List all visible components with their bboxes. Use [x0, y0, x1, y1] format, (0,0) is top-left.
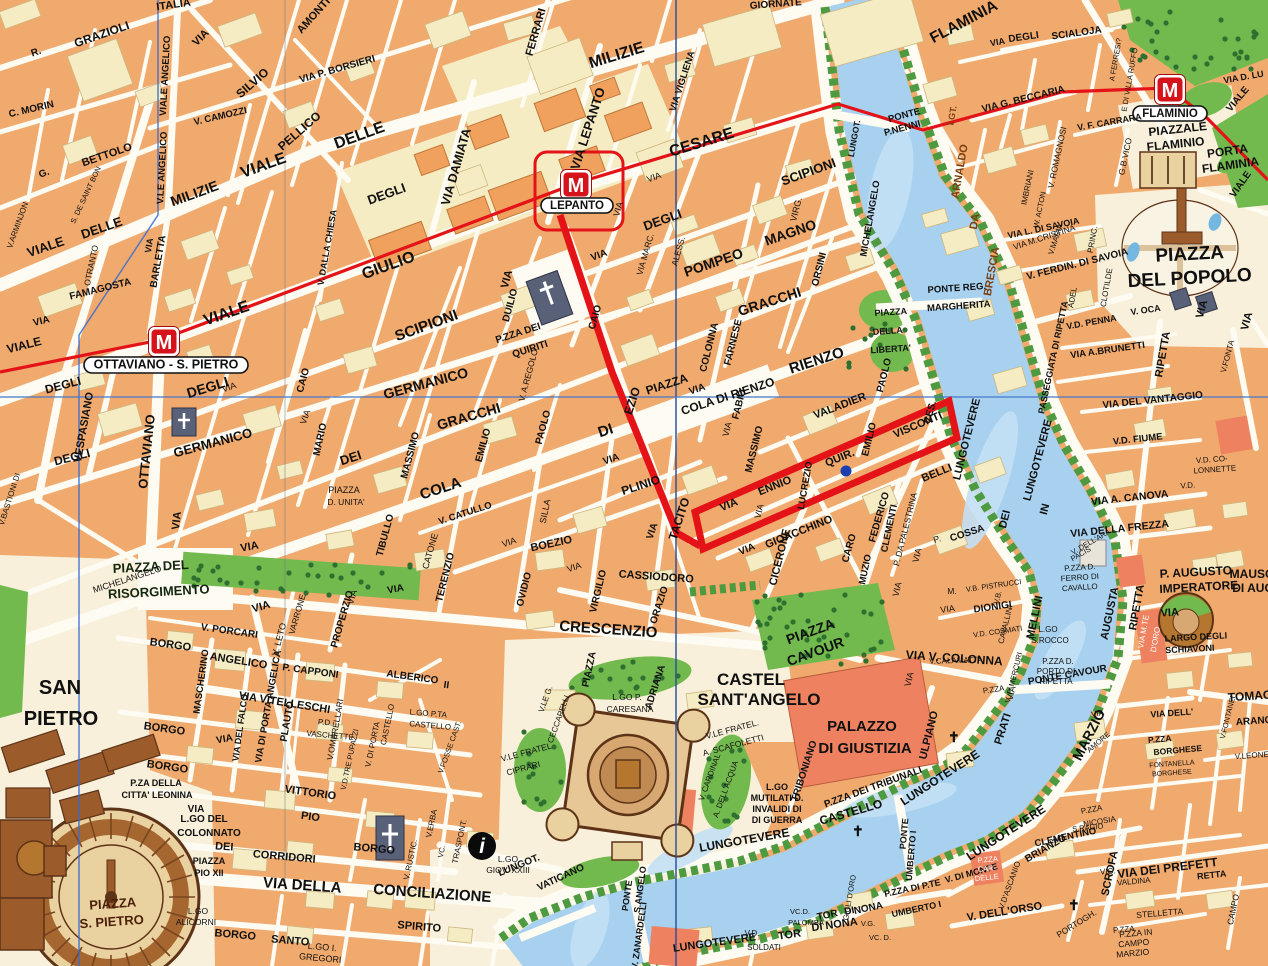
svg-text:DELLA: DELLA	[872, 325, 903, 337]
svg-text:MAUSO: MAUSO	[1230, 567, 1268, 581]
svg-text:VIA: VIA	[1160, 606, 1179, 619]
svg-text:L.GO P.: L.GO P.	[612, 692, 642, 702]
svg-text:VC. D.: VC. D.	[869, 933, 891, 942]
svg-text:P.ZA DELLA: P.ZA DELLA	[130, 778, 182, 788]
svg-text:L.GO: L.GO	[766, 782, 788, 792]
svg-text:PIO XII: PIO XII	[194, 868, 223, 878]
svg-text:V.D.: V.D.	[745, 929, 760, 938]
svg-text:V.CALAMATTA: V.CALAMATTA	[929, 655, 984, 666]
svg-text:INVALIDI DI: INVALIDI DI	[752, 804, 801, 814]
svg-text:ARANC: ARANC	[1235, 715, 1268, 728]
svg-text:PIETRO: PIETRO	[24, 708, 98, 730]
svg-text:L.GO DEL: L.GO DEL	[180, 814, 227, 825]
svg-text:✝: ✝	[852, 823, 864, 839]
svg-text:M.: M.	[947, 586, 956, 596]
svg-text:VIA: VIA	[170, 511, 184, 531]
svg-text:OTTAVIANO - S. PIETRO: OTTAVIANO - S. PIETRO	[94, 358, 239, 372]
svg-text:LEPANTO: LEPANTO	[550, 200, 604, 212]
svg-text:SAN: SAN	[39, 677, 81, 699]
svg-text:PIAZZA: PIAZZA	[328, 485, 360, 495]
svg-text:CASTEL: CASTEL	[717, 670, 785, 689]
svg-text:COLONNATO: COLONNATO	[177, 828, 241, 839]
svg-text:M: M	[1162, 80, 1179, 102]
svg-text:SOLDATI: SOLDATI	[747, 943, 781, 952]
svg-text:SANT'ANGELO: SANT'ANGELO	[697, 690, 820, 709]
svg-text:D. UNITA': D. UNITA'	[327, 497, 365, 507]
svg-text:DEI: DEI	[215, 840, 234, 853]
svg-text:S.ROCCO: S.ROCCO	[1031, 636, 1068, 645]
svg-text:VIA: VIA	[940, 603, 956, 615]
svg-text:✝: ✝	[948, 729, 960, 745]
svg-text:P.ZZA: P.ZZA	[1148, 733, 1172, 745]
svg-text:ALICORNI: ALICORNI	[176, 917, 216, 927]
svg-text:MUTILATI D.: MUTILATI D.	[751, 793, 804, 803]
svg-text:PALOMBA: PALOMBA	[788, 918, 824, 927]
svg-text:M: M	[156, 332, 173, 354]
svg-text:DI GUERRA: DI GUERRA	[752, 815, 803, 825]
svg-text:✝: ✝	[1068, 897, 1080, 913]
svg-text:PIAZZA: PIAZZA	[1155, 242, 1225, 267]
svg-text:L.GO: L.GO	[188, 906, 209, 916]
svg-text:M: M	[568, 175, 585, 197]
svg-text:CARESANA: CARESANA	[607, 704, 654, 714]
svg-text:PIAZZA: PIAZZA	[193, 856, 226, 866]
svg-text:P.ZZA D.: P.ZZA D.	[1042, 657, 1073, 666]
svg-text:V.D.: V.D.	[1180, 480, 1195, 490]
svg-text:L.GO: L.GO	[1038, 625, 1057, 634]
svg-text:DI AUG: DI AUG	[1232, 581, 1268, 595]
svg-text:CITTA' LEONINA: CITTA' LEONINA	[122, 790, 193, 800]
svg-text:VIC.: VIC.	[1100, 866, 1116, 876]
svg-text:P.D.: P.D.	[318, 717, 333, 727]
svg-text:FLAMINIO: FLAMINIO	[1142, 108, 1198, 120]
svg-text:VC.D.: VC.D.	[790, 907, 810, 916]
svg-text:PALAZZO: PALAZZO	[827, 718, 897, 735]
svg-text:DI GIUSTIZIA: DI GIUSTIZIA	[818, 740, 912, 757]
svg-text:V.G.: V.G.	[861, 919, 875, 928]
